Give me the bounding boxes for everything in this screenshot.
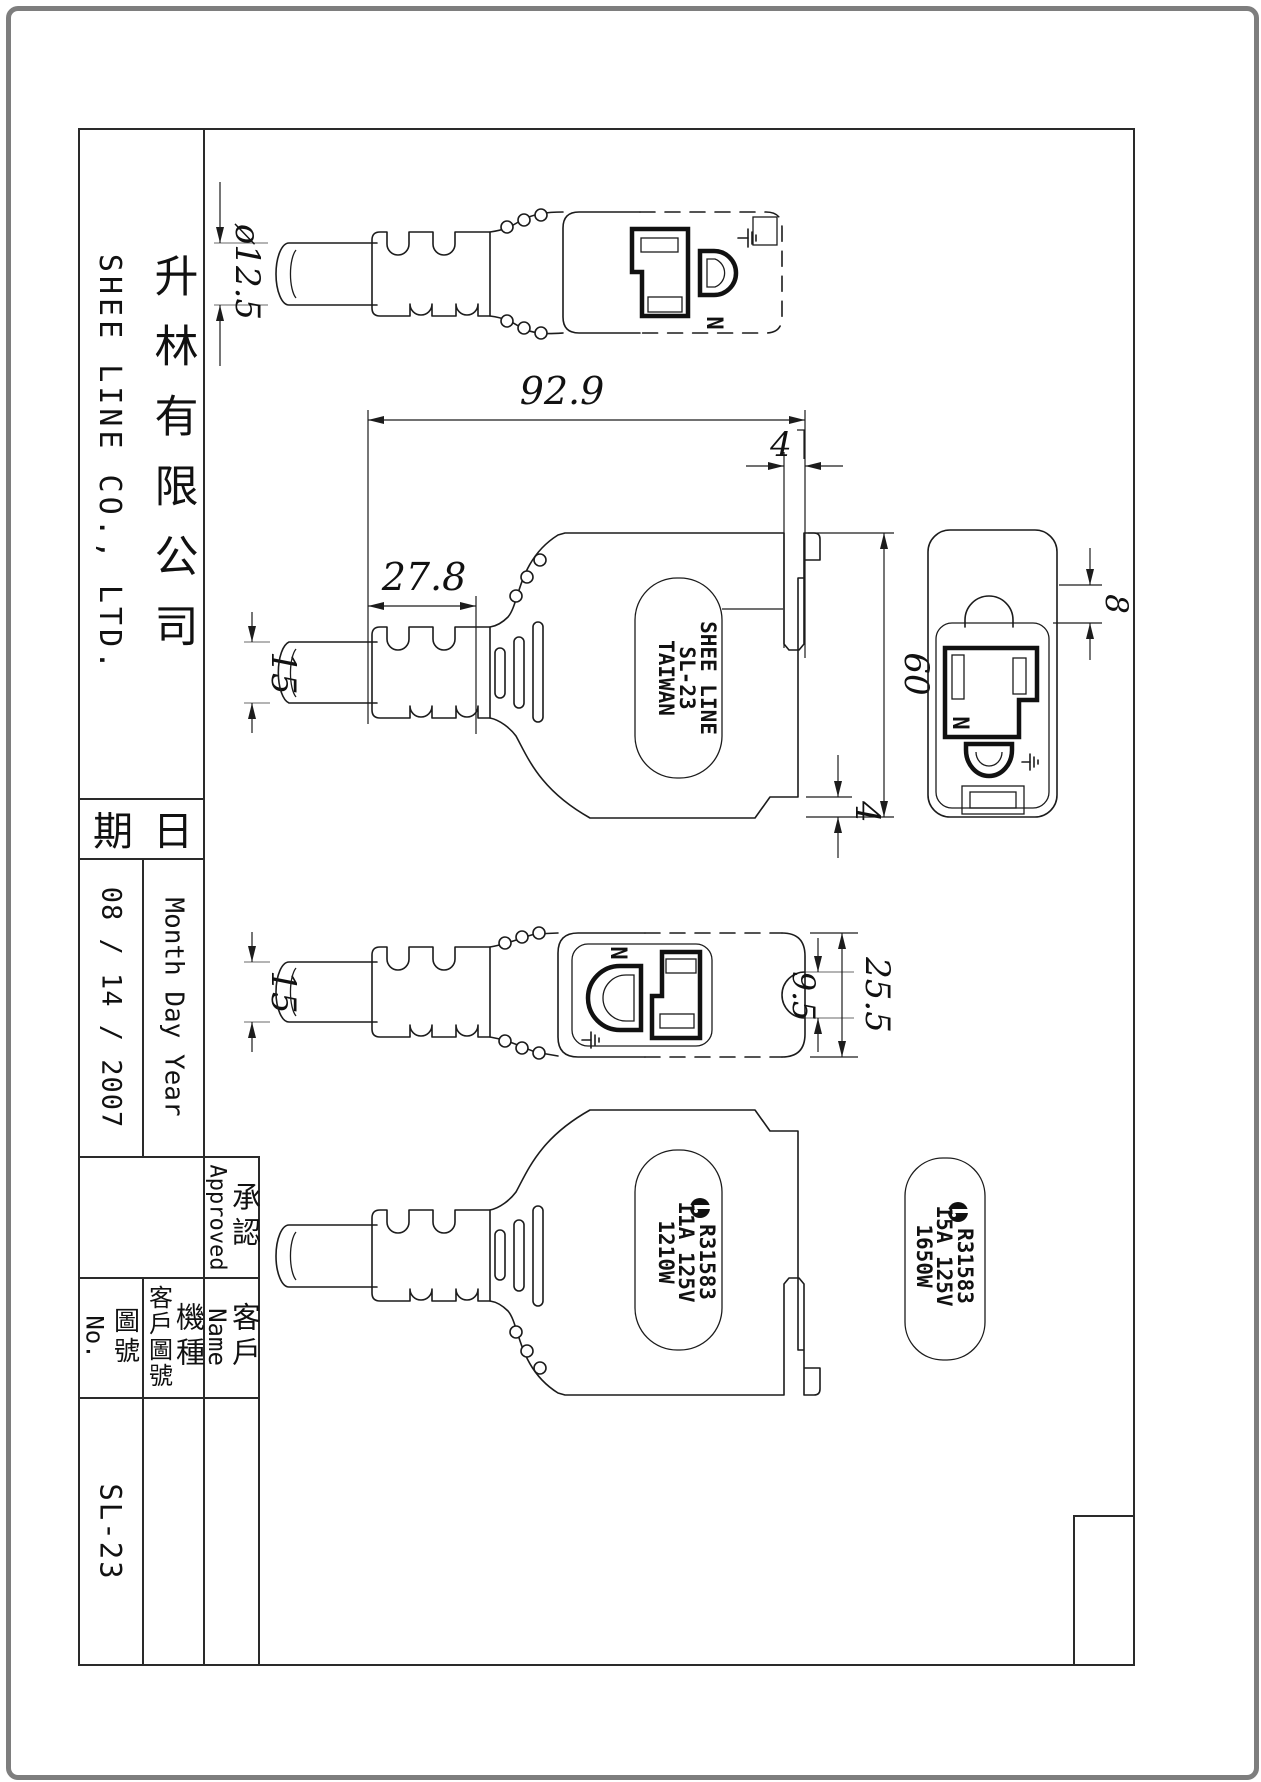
view-back: 15 N [244, 927, 897, 1059]
view-top: ø12.5 N [214, 182, 782, 366]
view-bottom: R31583 11A 125V 1210W [276, 1110, 820, 1395]
front-neutral-label: N [947, 716, 972, 729]
dim-recess-diameter: 9.5 [785, 938, 854, 1052]
dim-top-notch: 4 [746, 425, 843, 648]
dim-bottom-step: 4 [806, 755, 887, 858]
front-blade-slot-2 [1013, 658, 1026, 694]
dim-body-height-text: 60 [896, 652, 936, 695]
rating-label: R31583 15A 125V 1650W [905, 1158, 985, 1360]
front-ground-hole-outline [966, 744, 1012, 776]
drawing-sheet: SHEE LINE CO., LTD. 升林有限公司 期 日 08 / 14 /… [0, 0, 1261, 1782]
dim-strain-relief: 27.8 [368, 555, 476, 734]
dim-cable-diameter: ø12.5 [216, 182, 267, 366]
front-bottom-slot-inner [970, 792, 1016, 808]
back-blade-slot-outline [652, 952, 700, 1038]
ground-hole-outline [700, 251, 736, 295]
dim-body-height: 60 [806, 533, 936, 817]
dim-bottom-step-text: 4 [847, 800, 887, 823]
dim-cable-width-back-text: 15 [263, 970, 303, 1013]
view-side: 92.9 4 27.8 [244, 369, 936, 858]
back-body-outline [558, 933, 645, 1057]
molded-label-line3: TAIWAN [654, 640, 678, 716]
back-blade-slot-2 [660, 1014, 694, 1028]
dim-recess-offset-text: 8 [1098, 594, 1134, 614]
back-blade-slot-1 [666, 959, 696, 973]
dim-cable-width-back: 15 [244, 932, 303, 1052]
front-bottom-slot-outer [962, 786, 1024, 814]
view-front: 8 N [928, 530, 1134, 817]
dim-total-length: 92.9 [368, 369, 805, 724]
dim-cable-width-side: 15 [244, 612, 303, 733]
dim-cable-width-side-text: 15 [263, 651, 303, 694]
dim-body-width: 25.5 [810, 933, 897, 1057]
neutral-label-top: N [701, 316, 726, 329]
blade-slot-1 [641, 238, 678, 252]
dim-body-width-text: 25.5 [857, 956, 897, 1033]
blade-slot-2 [648, 297, 682, 312]
back-neutral-label: N [605, 946, 630, 959]
front-blade-slot-1 [952, 655, 964, 699]
dim-recess-diameter-text: 9.5 [785, 971, 821, 1020]
dim-recess-offset: 8 [1053, 548, 1134, 660]
rating-line3: 1210W [654, 1220, 678, 1284]
dim-total-length-text: 92.9 [520, 369, 605, 413]
dim-cable-diameter-text: ø12.5 [227, 223, 267, 320]
dim-strain-relief-text: 27.8 [381, 555, 467, 599]
dim-top-notch-text: 4 [769, 425, 792, 465]
drawing-canvas: ø12.5 N [0, 0, 1261, 1782]
rating-label-line3: 1650W [912, 1224, 936, 1288]
front-ground-icon [1022, 754, 1038, 770]
